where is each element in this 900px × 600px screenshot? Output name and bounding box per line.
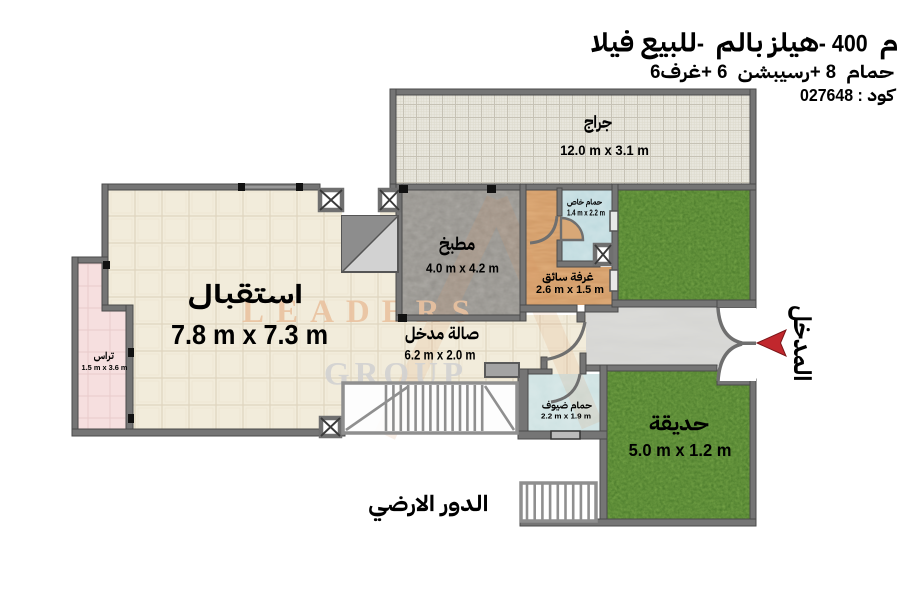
svg-text:2.6 m x 1.5 m: 2.6 m x 1.5 m bbox=[536, 284, 604, 296]
svg-text:6: 6 bbox=[650, 62, 660, 84]
svg-text:7.8 m x 7.3 m: 7.8 m x 7.3 m bbox=[171, 319, 328, 351]
svg-text:027648 :: 027648 : bbox=[800, 85, 863, 105]
svg-text:5.0 m x 1.2 m: 5.0 m x 1.2 m bbox=[629, 439, 732, 460]
svg-text:- 400: - 400 bbox=[819, 29, 868, 56]
svg-text:1.5 m x 3.6 m: 1.5 m x 3.6 m bbox=[82, 363, 128, 372]
svg-text:1.4 m x 2.2 m: 1.4 m x 2.2 m bbox=[567, 209, 605, 218]
svg-text:+ 6: + 6 bbox=[701, 62, 727, 84]
svg-text:4.0 m x 4.2 m: 4.0 m x 4.2 m bbox=[426, 261, 499, 276]
svg-text:+ 8: + 8 bbox=[810, 62, 836, 84]
svg-text:-: - bbox=[697, 29, 704, 56]
svg-text:6.2 m x 2.0 m: 6.2 m x 2.0 m bbox=[404, 346, 475, 362]
svg-text:2.2 m x 1.9 m: 2.2 m x 1.9 m bbox=[541, 412, 591, 421]
svg-text:12.0 m x 3.1 m: 12.0 m x 3.1 m bbox=[560, 143, 649, 158]
